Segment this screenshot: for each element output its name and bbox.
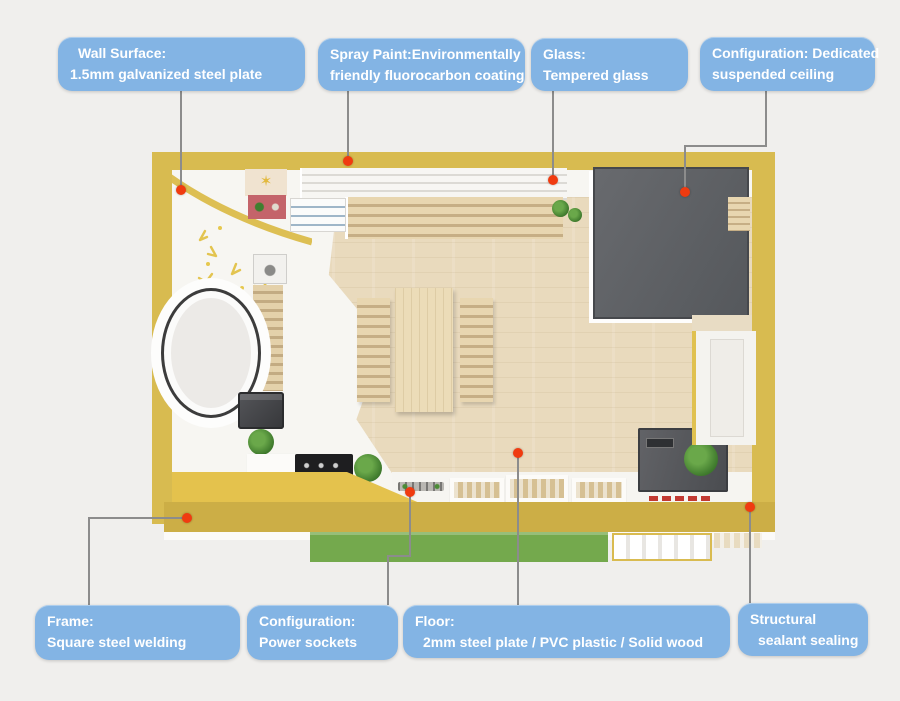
callout-wall-surface-line1: Wall Surface:	[70, 43, 293, 64]
dot-power	[405, 487, 415, 497]
dining-table	[395, 288, 453, 412]
callout-power: Configuration: Power sockets	[247, 605, 398, 660]
dot-wall-surface	[176, 185, 186, 195]
callout-sealant-line1: Structural	[750, 609, 856, 630]
callout-spray-paint: Spray Paint:Environmentally friendly flu…	[318, 38, 525, 91]
slat-bench-top	[345, 197, 563, 239]
potted-plant-top-2	[568, 208, 582, 222]
callout-power-line2: Power sockets	[259, 632, 386, 653]
dot-frame	[182, 513, 192, 523]
potted-plant-left	[248, 429, 274, 455]
callout-floor-line2: 2mm steel plate / PVC plastic / Solid wo…	[415, 632, 718, 653]
callout-sealant: Structural sealant sealing	[738, 603, 868, 656]
callout-ceiling-line1: Configuration: Dedicated	[712, 43, 863, 64]
window-frame-2	[506, 475, 568, 502]
dot-ceiling	[680, 187, 690, 197]
coffee-machine	[238, 392, 284, 429]
floor-plan: ✶	[152, 152, 775, 540]
suspended-ceiling-panel	[593, 167, 749, 319]
leader-spray-paint	[347, 90, 349, 161]
dot-sealant	[745, 502, 755, 512]
leader-sealant	[749, 507, 751, 603]
washing-machine	[253, 254, 287, 284]
leader-power-v1	[409, 492, 411, 556]
leader-ceiling-h	[684, 145, 767, 147]
drawer-cabinet	[290, 198, 346, 232]
callout-spray-paint-line2: friendly fluorocarbon coating	[330, 65, 513, 86]
callout-glass: Glass: Tempered glass	[531, 38, 688, 91]
door-panel	[710, 339, 744, 437]
right-door	[692, 331, 756, 445]
callout-floor: Floor: 2mm steel plate / PVC plastic / S…	[403, 605, 730, 658]
callout-ceiling: Configuration: Dedicated suspended ceili…	[700, 37, 875, 91]
callout-frame-line1: Frame:	[47, 611, 228, 632]
leader-power-v2	[387, 555, 389, 605]
bench-left	[357, 298, 390, 402]
annotated-floorplan-figure: ✶	[0, 0, 900, 701]
window-frame-1	[450, 478, 504, 502]
step-blocks	[612, 533, 712, 561]
callout-glass-line2: Tempered glass	[543, 65, 676, 86]
leader-frame-v	[88, 518, 90, 605]
wall-bottom	[164, 502, 775, 532]
dot-floor	[513, 448, 523, 458]
potted-plant-top-1	[552, 200, 569, 217]
leader-ceiling-v2	[684, 145, 686, 192]
callout-spray-paint-line1: Spray Paint:Environmentally	[330, 44, 513, 65]
door-shelf	[692, 315, 752, 331]
callout-sealant-line2: sealant sealing	[750, 630, 856, 651]
callout-glass-line1: Glass:	[543, 44, 676, 65]
leader-frame-h	[88, 517, 187, 519]
red-planter-box	[248, 195, 286, 219]
callout-frame-line2: Square steel welding	[47, 632, 228, 653]
leader-ceiling-v1	[765, 90, 767, 147]
cabinet-vent	[646, 438, 674, 448]
callout-floor-line1: Floor:	[415, 611, 718, 632]
callout-wall-surface-line2: 1.5mm galvanized steel plate	[70, 64, 293, 85]
leader-floor	[517, 453, 519, 605]
dot-spray-paint	[343, 156, 353, 166]
callout-wall-surface: Wall Surface: 1.5mm galvanized steel pla…	[58, 37, 305, 91]
star-decal: ✶	[245, 169, 287, 196]
leader-power-h	[387, 555, 411, 557]
leader-glass	[552, 90, 554, 180]
leader-wall-surface	[180, 90, 182, 190]
dot-glass	[548, 175, 558, 185]
bench-right	[460, 298, 493, 402]
slat-strip-right	[728, 197, 750, 231]
green-deck	[310, 532, 608, 562]
red-print-marks	[649, 496, 713, 501]
window-frame-3	[572, 478, 626, 502]
outdoor-slats	[714, 533, 762, 548]
callout-frame: Frame: Square steel welding	[35, 605, 240, 660]
glass-canopy	[300, 168, 567, 200]
callout-power-line1: Configuration:	[259, 611, 386, 632]
cabinet-plant	[684, 442, 718, 476]
wall-right	[752, 152, 775, 508]
callout-ceiling-line2: suspended ceiling	[712, 64, 863, 85]
